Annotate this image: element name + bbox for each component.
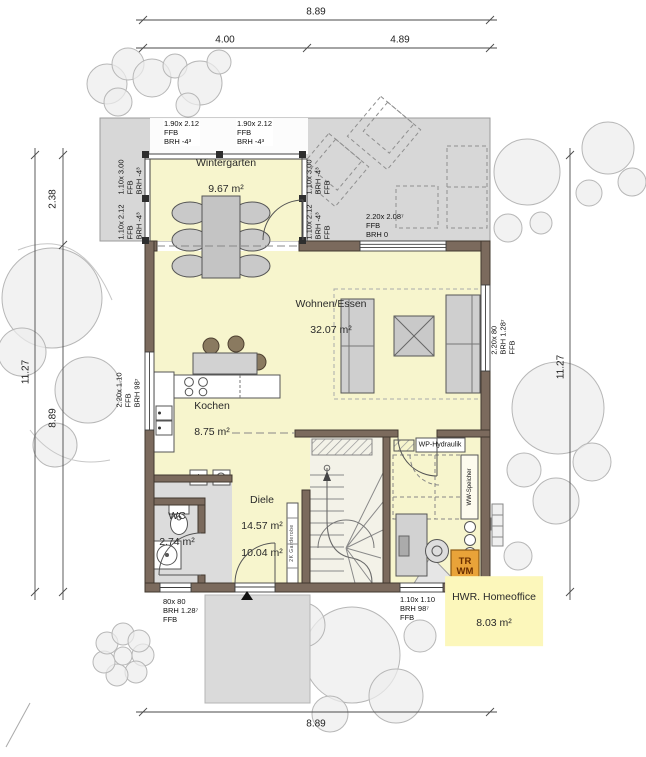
entrance-path <box>205 595 310 703</box>
furniture-dining <box>172 196 270 278</box>
floorplan-canvas <box>0 0 646 757</box>
terrace-door <box>360 241 446 251</box>
bar-counter <box>193 353 257 374</box>
heat-pump-unit <box>492 504 503 546</box>
garderobe-cabinet <box>287 503 298 583</box>
office-chair <box>426 540 449 563</box>
toilet <box>171 514 188 535</box>
ww-speicher-tank <box>461 455 478 519</box>
entrance-door-opening <box>235 583 275 592</box>
flower-bush <box>93 623 154 686</box>
electrical-box <box>394 440 414 451</box>
floorplan: 8.89 4.00 4.89 11.27 2.38 8.89 11.27 8.8… <box>0 0 646 757</box>
stair-landing <box>312 439 372 455</box>
dryer-washer-box <box>451 550 479 583</box>
wp-hydraulik-box <box>416 438 465 452</box>
